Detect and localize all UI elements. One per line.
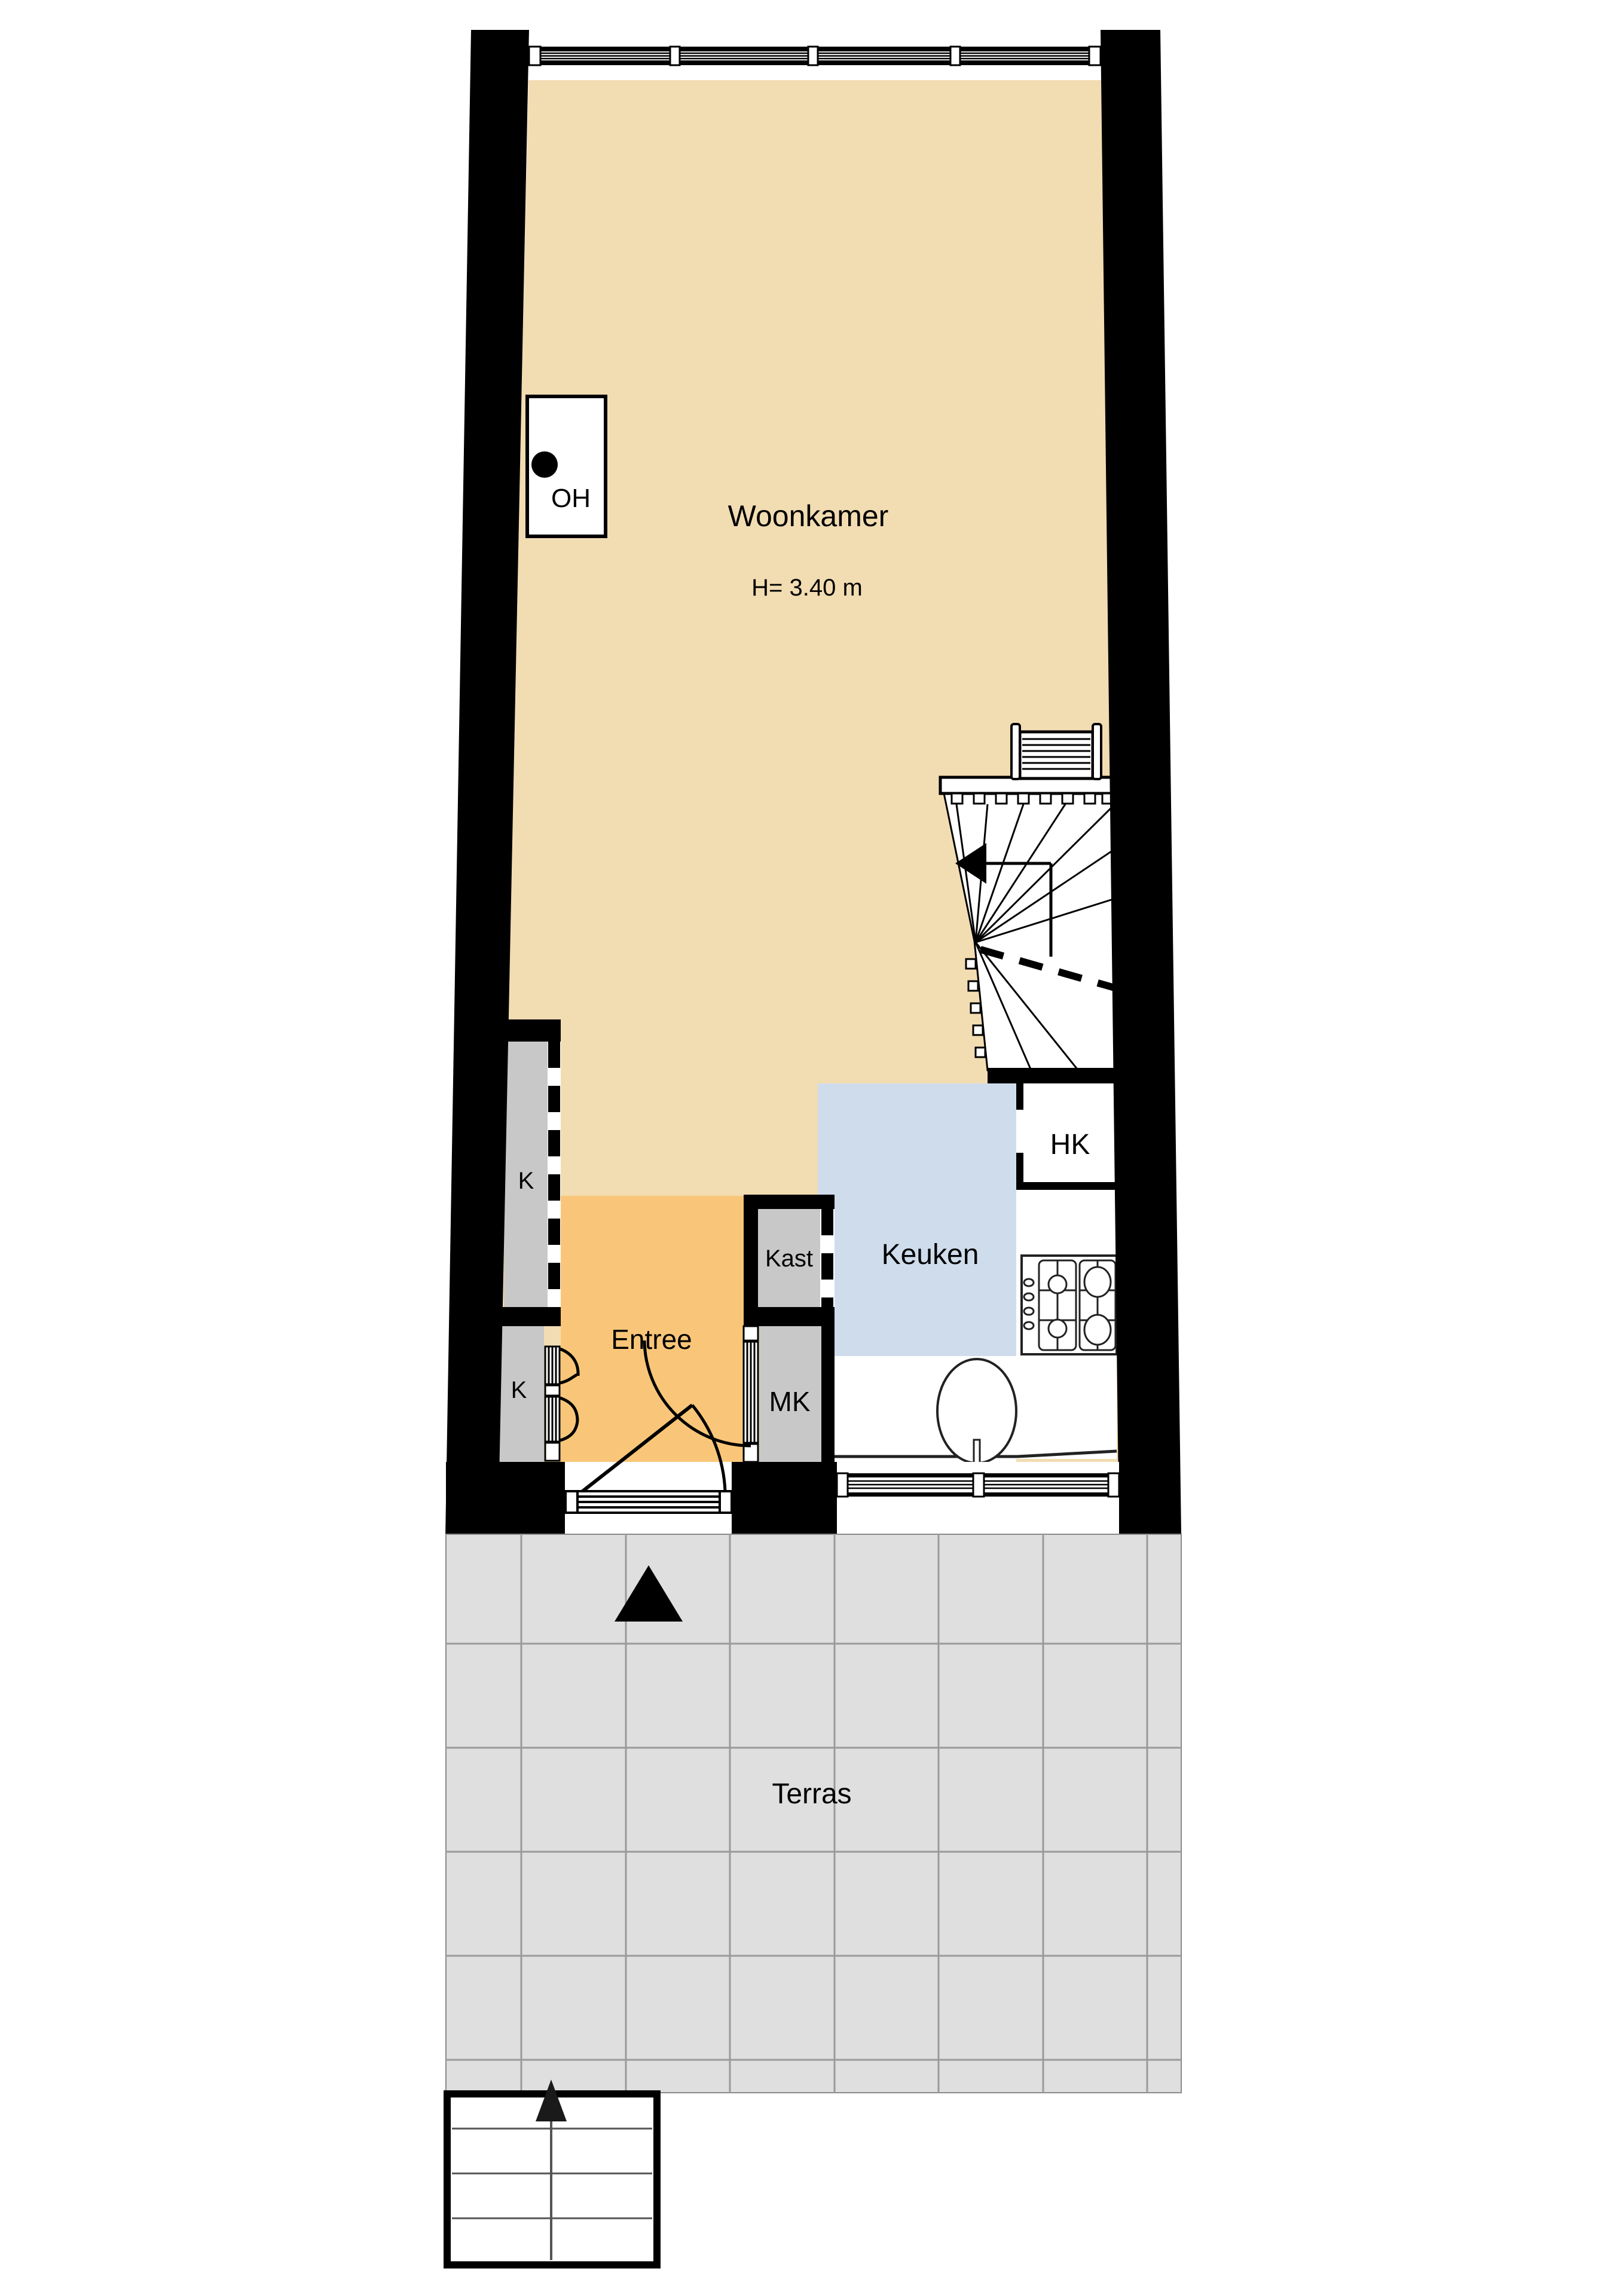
entree-label: Entree — [611, 1324, 692, 1355]
keuken-room — [818, 1083, 1016, 1356]
facade-window-top — [529, 30, 1101, 80]
mk-label: MK — [769, 1386, 811, 1417]
wall-bottom-left — [446, 1462, 565, 1534]
louvre-door-mk — [744, 1326, 758, 1462]
facade-window-kitchen — [837, 1462, 1119, 1534]
terras-area — [446, 1534, 1181, 2093]
floor-plan-page: Woonkamer H= 3.40 m OH HK Keuken Kast K … — [0, 0, 1623, 2296]
k-upper-label: K — [518, 1168, 534, 1194]
hk-label: HK — [1050, 1129, 1090, 1161]
woonkamer-height-label: H= 3.40 m — [751, 575, 863, 601]
radiator-icon — [1011, 724, 1101, 779]
louvre-door-k — [545, 1347, 560, 1461]
oh-dot-icon — [531, 451, 558, 478]
wall-bottom-mid — [732, 1462, 837, 1534]
stove-icon — [1022, 1256, 1117, 1354]
exterior-steps — [447, 2080, 657, 2265]
keuken-label: Keuken — [882, 1239, 979, 1271]
terras-label: Terras — [772, 1778, 851, 1810]
oh-label: OH — [551, 484, 591, 513]
floor-plan-canvas: Woonkamer H= 3.40 m OH HK Keuken Kast K … — [0, 0, 1623, 2296]
kast-label: Kast — [765, 1245, 813, 1272]
k-lower-label: K — [511, 1377, 527, 1403]
woonkamer-label: Woonkamer — [728, 499, 889, 533]
oh-unit — [527, 396, 606, 536]
wall-under-stairs — [988, 1068, 1120, 1083]
